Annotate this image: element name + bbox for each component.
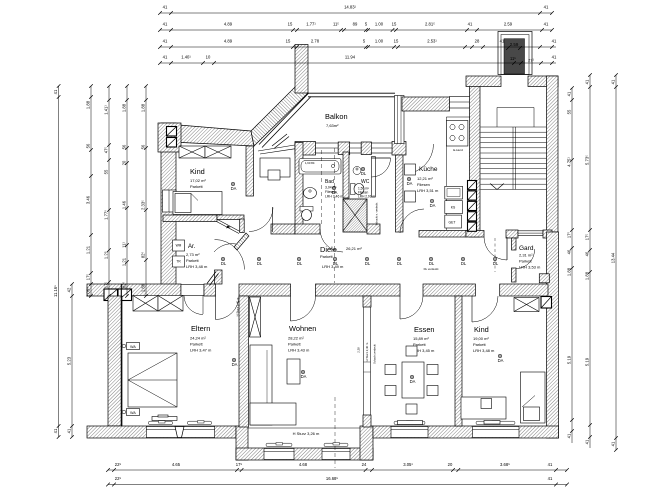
svg-text:41: 41 (500, 39, 505, 44)
svg-text:55: 55 (567, 109, 572, 114)
svg-text:47⁵: 47⁵ (104, 147, 109, 154)
svg-text:17⁰: 17⁰ (567, 232, 572, 239)
svg-text:Gard.: Gard. (519, 245, 535, 252)
svg-text:4.68: 4.68 (299, 462, 308, 467)
svg-text:11⁵: 11⁵ (333, 22, 339, 27)
svg-text:22⁵: 22⁵ (115, 476, 122, 481)
svg-text:41: 41 (585, 439, 590, 444)
svg-text:Parkett: Parkett (288, 342, 302, 347)
svg-text:DL verdeckt: DL verdeckt (424, 267, 439, 271)
svg-text:DA: DA (231, 186, 237, 191)
svg-text:11¹: 11¹ (122, 242, 127, 248)
svg-text:DL: DL (429, 261, 435, 266)
svg-text:2.78: 2.78 (311, 39, 320, 44)
svg-text:DL: DL (461, 261, 467, 266)
svg-text:4.89: 4.89 (224, 22, 233, 27)
svg-text:41: 41 (163, 55, 168, 60)
svg-text:Essen: Essen (414, 325, 435, 334)
svg-text:2.53¹: 2.53¹ (427, 39, 437, 44)
svg-text:1.40¹: 1.40¹ (181, 55, 191, 60)
svg-text:11.94: 11.94 (345, 55, 356, 60)
svg-text:DA: DA (410, 379, 416, 384)
svg-text:5.23: 5.23 (67, 356, 72, 365)
svg-text:20: 20 (448, 462, 453, 467)
svg-text:1.00: 1.00 (375, 22, 384, 27)
svg-text:KS: KS (451, 206, 456, 210)
svg-text:41: 41 (53, 89, 58, 94)
svg-text:41: 41 (611, 79, 616, 84)
svg-text:1.21: 1.21 (104, 250, 109, 259)
svg-text:41: 41 (544, 22, 549, 27)
svg-text:LRH 3,53 m: LRH 3,53 m (519, 265, 541, 270)
svg-text:1.88: 1.88 (141, 283, 146, 292)
svg-text:7,63m²: 7,63m² (326, 123, 339, 128)
svg-text:1.00: 1.00 (375, 39, 384, 44)
svg-text:Ar.: Ar. (188, 244, 196, 250)
svg-text:H Sturz 3,26 m: H Sturz 3,26 m (293, 431, 320, 436)
svg-text:41: 41 (548, 476, 553, 481)
svg-text:DL: DL (361, 171, 367, 176)
svg-text:17⁵: 17⁵ (236, 462, 243, 467)
svg-text:Parkett: Parkett (320, 254, 334, 259)
svg-text:17,02 m²: 17,02 m² (190, 178, 206, 183)
svg-text:41: 41 (544, 5, 549, 10)
svg-text:1.41¹: 1.41¹ (104, 105, 109, 115)
svg-text:DL: DL (365, 261, 371, 266)
svg-text:1.77⁰: 1.77⁰ (104, 210, 109, 220)
svg-text:LRH 2,91 m: LRH 2,91 m (358, 195, 375, 199)
svg-text:24,24 m²: 24,24 m² (190, 336, 206, 341)
svg-text:26,21 m²: 26,21 m² (346, 246, 362, 251)
svg-text:15: 15 (394, 39, 399, 44)
svg-text:27¹: 27¹ (528, 58, 534, 63)
svg-text:2.33⁵: 2.33⁵ (141, 200, 146, 210)
svg-text:10: 10 (206, 55, 211, 60)
svg-text:Küche: Küche (419, 166, 438, 173)
svg-text:1.21: 1.21 (86, 245, 91, 254)
svg-text:46: 46 (585, 251, 590, 256)
svg-text:15,89 m²: 15,89 m² (413, 336, 429, 341)
svg-text:4.75¹: 4.75¹ (567, 157, 572, 167)
svg-text:41: 41 (552, 55, 557, 60)
svg-text:56: 56 (86, 143, 91, 148)
svg-text:4.65: 4.65 (172, 462, 181, 467)
svg-text:46: 46 (567, 249, 572, 254)
svg-text:41: 41 (552, 39, 557, 44)
svg-text:Eltern: Eltern (191, 324, 210, 333)
svg-text:1.88: 1.88 (141, 103, 146, 112)
svg-text:15: 15 (286, 39, 291, 44)
svg-text:41: 41 (611, 441, 616, 446)
svg-text:2.59: 2.59 (504, 22, 513, 27)
svg-text:56: 56 (141, 144, 146, 149)
svg-text:DA: DA (498, 358, 504, 363)
svg-text:Balkon: Balkon (325, 112, 348, 121)
svg-text:5.19: 5.19 (567, 355, 572, 364)
svg-text:DL: DL (257, 261, 263, 266)
svg-text:E-Herd: E-Herd (453, 148, 463, 152)
svg-text:3.68⁵: 3.68⁵ (500, 462, 510, 467)
svg-text:Kind: Kind (190, 167, 205, 176)
svg-text:42: 42 (67, 287, 72, 292)
svg-text:Fliesen: Fliesen (417, 182, 430, 187)
svg-text:1.77¹: 1.77¹ (306, 22, 316, 27)
svg-text:22⁵: 22⁵ (115, 462, 122, 467)
svg-text:89: 89 (353, 22, 358, 27)
svg-text:1,60 80.: 1,60 80. (305, 161, 315, 165)
svg-text:LRH 3,48 m: LRH 3,48 m (473, 348, 495, 353)
svg-text:4.89: 4.89 (224, 39, 233, 44)
svg-text:DA: DA (407, 181, 413, 186)
svg-text:15: 15 (392, 22, 397, 27)
svg-text:LRH 3,46 m: LRH 3,46 m (325, 195, 343, 199)
svg-text:2,73 m²: 2,73 m² (186, 252, 200, 257)
svg-text:11⁵: 11⁵ (510, 56, 516, 61)
svg-text:Wohnen: Wohnen (289, 324, 316, 333)
svg-text:2.81⁵: 2.81⁵ (425, 22, 435, 27)
svg-text:56: 56 (122, 144, 127, 149)
svg-text:WA: WA (130, 411, 136, 415)
svg-text:1.88: 1.88 (567, 267, 572, 276)
svg-text:TR: TR (176, 260, 181, 264)
svg-text:Parkett: Parkett (190, 184, 204, 189)
svg-text:2.05⁵: 2.05⁵ (86, 287, 91, 297)
svg-text:2,38: 2,38 (357, 347, 361, 353)
svg-text:WM: WM (176, 244, 182, 248)
svg-text:LRH 3,43 m: LRH 3,43 m (288, 348, 310, 353)
svg-text:H Sturz 2,40 m: H Sturz 2,40 m (365, 342, 369, 361)
svg-text:1.88: 1.88 (122, 103, 127, 112)
svg-text:DL: DL (297, 261, 303, 266)
svg-text:DL: DL (333, 261, 339, 266)
svg-text:1.88: 1.88 (86, 100, 91, 109)
svg-text:3.05¹: 3.05¹ (403, 462, 413, 467)
svg-text:LRH 3,51 m: LRH 3,51 m (417, 188, 439, 193)
svg-text:82⁰: 82⁰ (122, 282, 127, 289)
svg-text:DL: DL (397, 261, 403, 266)
svg-text:41: 41 (67, 428, 72, 433)
svg-text:55: 55 (104, 169, 109, 174)
svg-text:DL: DL (493, 261, 499, 266)
svg-text:41: 41 (468, 22, 473, 27)
svg-text:41: 41 (585, 79, 590, 84)
svg-text:17⁵: 17⁵ (86, 274, 91, 281)
svg-text:12,21 m²: 12,21 m² (417, 176, 433, 181)
svg-text:3.46: 3.46 (86, 195, 91, 204)
svg-text:DA: DA (430, 203, 436, 208)
svg-text:GET: GET (449, 221, 456, 225)
svg-text:WC: WC (361, 179, 370, 185)
svg-text:1.21: 1.21 (122, 257, 127, 266)
svg-text:2,31 m²: 2,31 m² (519, 253, 533, 258)
svg-text:17⁵: 17⁵ (585, 234, 590, 241)
svg-text:15: 15 (288, 22, 293, 27)
svg-text:Parkett: Parkett (186, 258, 200, 263)
svg-text:11.16⁵: 11.16⁵ (53, 285, 58, 297)
svg-text:5.73⁵: 5.73⁵ (585, 155, 590, 165)
svg-text:WA: WA (130, 345, 136, 349)
svg-text:Schacht verdeckt: Schacht verdeckt (373, 344, 377, 364)
svg-text:LRH 3,48 m: LRH 3,48 m (186, 264, 208, 269)
svg-text:DA: DA (232, 362, 238, 367)
svg-text:1.46: 1.46 (122, 200, 127, 209)
svg-text:14.83¹: 14.83¹ (344, 5, 356, 10)
svg-text:28: 28 (475, 39, 480, 44)
svg-text:Schacht n. verdeckt: Schacht n. verdeckt (375, 202, 379, 225)
svg-text:DL: DL (221, 261, 227, 266)
svg-text:41: 41 (163, 22, 168, 27)
svg-text:41: 41 (163, 39, 168, 44)
svg-text:41: 41 (163, 5, 168, 10)
svg-text:82⁰: 82⁰ (141, 252, 146, 259)
svg-text:41: 41 (567, 91, 572, 96)
svg-text:13.44: 13.44 (611, 252, 616, 263)
svg-text:Parkett: Parkett (519, 259, 533, 264)
svg-text:41: 41 (53, 428, 58, 433)
svg-text:5.19: 5.19 (585, 357, 590, 366)
svg-text:Bad: Bad (325, 179, 334, 185)
svg-text:17⁵: 17⁵ (104, 282, 109, 289)
svg-text:41: 41 (567, 433, 572, 438)
svg-text:20: 20 (122, 160, 127, 165)
svg-text:1.88: 1.88 (585, 271, 590, 280)
svg-text:41: 41 (548, 462, 553, 467)
svg-text:2.59: 2.59 (510, 42, 519, 47)
svg-text:Parkett: Parkett (190, 342, 204, 347)
svg-text:24: 24 (362, 462, 367, 467)
svg-text:H Sturz 2,40 m: H Sturz 2,40 m (236, 297, 240, 316)
svg-text:LRH 3,47 m: LRH 3,47 m (190, 348, 212, 353)
svg-text:DA: DA (301, 374, 307, 379)
svg-text:16.68⁵: 16.68⁵ (326, 476, 338, 481)
svg-text:28,22 m²: 28,22 m² (288, 336, 304, 341)
svg-text:Kind: Kind (474, 325, 489, 334)
svg-text:Parkett: Parkett (473, 342, 487, 347)
svg-text:19,00 m²: 19,00 m² (473, 336, 489, 341)
